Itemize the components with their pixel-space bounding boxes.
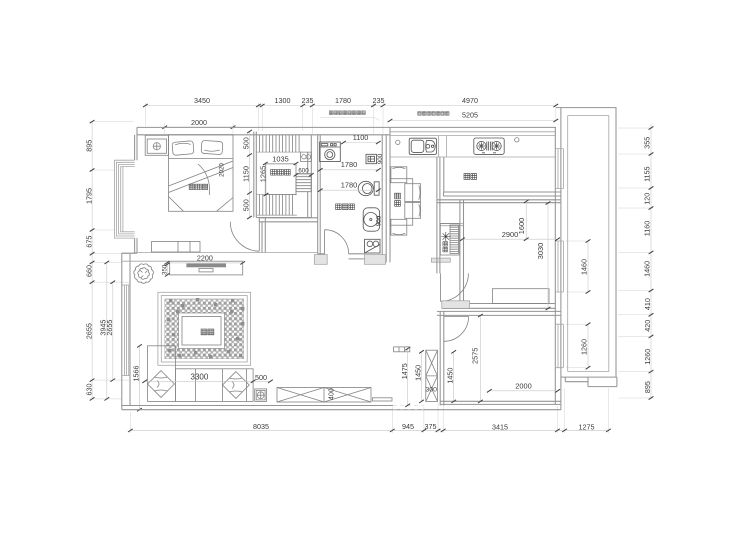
svg-text:235: 235 (373, 96, 385, 105)
svg-text:8035: 8035 (253, 422, 269, 431)
svg-text:3030: 3030 (536, 243, 545, 259)
svg-text:410: 410 (643, 298, 652, 310)
svg-text:5205: 5205 (462, 111, 478, 120)
svg-text:660: 660 (85, 265, 94, 277)
svg-text:1600: 1600 (517, 218, 526, 234)
svg-text:1566: 1566 (132, 366, 141, 382)
svg-text:600: 600 (298, 168, 309, 175)
svg-text:355: 355 (643, 137, 652, 149)
svg-text:900: 900 (377, 153, 384, 164)
svg-text:1450: 1450 (446, 368, 455, 384)
svg-text:1260: 1260 (580, 339, 589, 355)
svg-text:895: 895 (643, 381, 652, 393)
svg-text:1780: 1780 (341, 160, 357, 169)
svg-text:1260: 1260 (643, 349, 652, 365)
svg-text:945: 945 (402, 422, 414, 431)
svg-text:1460: 1460 (643, 261, 652, 277)
svg-text:675: 675 (85, 236, 94, 248)
svg-text:895: 895 (85, 140, 94, 152)
svg-text:1450: 1450 (414, 365, 423, 381)
svg-text:375: 375 (425, 422, 437, 431)
svg-text:400: 400 (326, 388, 335, 400)
svg-text:2575: 2575 (471, 348, 480, 364)
svg-text:2020: 2020 (218, 163, 225, 177)
svg-text:1795: 1795 (85, 188, 94, 204)
svg-text:2655: 2655 (85, 323, 94, 339)
svg-text:500: 500 (255, 373, 267, 382)
svg-text:1150: 1150 (241, 166, 250, 182)
svg-text:2655: 2655 (105, 320, 114, 336)
svg-text:500: 500 (241, 137, 250, 149)
svg-text:120: 120 (643, 193, 652, 205)
svg-text:420: 420 (643, 320, 652, 332)
svg-text:1100: 1100 (353, 133, 368, 142)
svg-text:3450: 3450 (194, 96, 210, 105)
svg-text:2900: 2900 (502, 230, 518, 239)
svg-text:900: 900 (376, 215, 383, 226)
svg-text:1780: 1780 (335, 96, 351, 105)
svg-text:630: 630 (85, 384, 94, 396)
svg-text:235: 235 (302, 96, 314, 105)
svg-text:2000: 2000 (191, 118, 207, 127)
svg-text:1155: 1155 (643, 166, 652, 181)
svg-text:1460: 1460 (580, 259, 589, 275)
svg-text:500: 500 (241, 199, 250, 211)
svg-text:3415: 3415 (492, 422, 508, 431)
svg-text:1780: 1780 (341, 181, 357, 190)
svg-text:1035: 1035 (272, 155, 288, 164)
svg-text:3300: 3300 (191, 373, 209, 382)
svg-text:1275: 1275 (579, 422, 595, 431)
svg-text:4970: 4970 (462, 96, 478, 105)
svg-text:1475: 1475 (400, 363, 409, 379)
svg-text:1300: 1300 (275, 96, 291, 105)
svg-text:1265: 1265 (258, 166, 267, 182)
svg-text:1160: 1160 (643, 221, 652, 236)
svg-text:2200: 2200 (197, 254, 213, 263)
svg-text:2000: 2000 (515, 382, 531, 391)
svg-text:300: 300 (426, 387, 438, 394)
svg-text:350: 350 (161, 264, 168, 275)
